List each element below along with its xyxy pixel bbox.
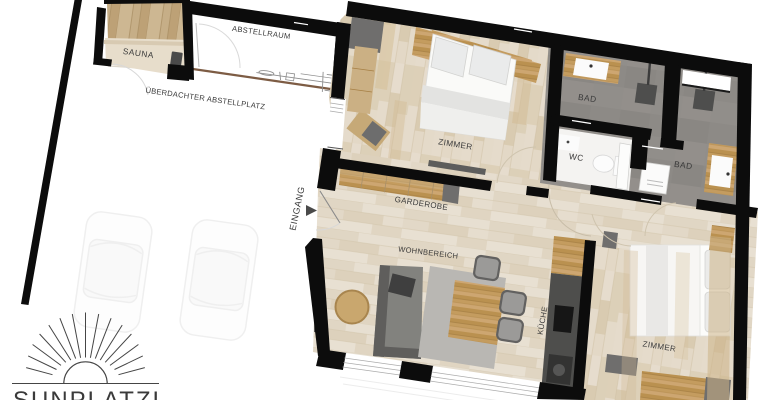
svg-text:WC: WC	[568, 151, 584, 163]
svg-text:SUNPLATZL: SUNPLATZL	[13, 387, 168, 400]
